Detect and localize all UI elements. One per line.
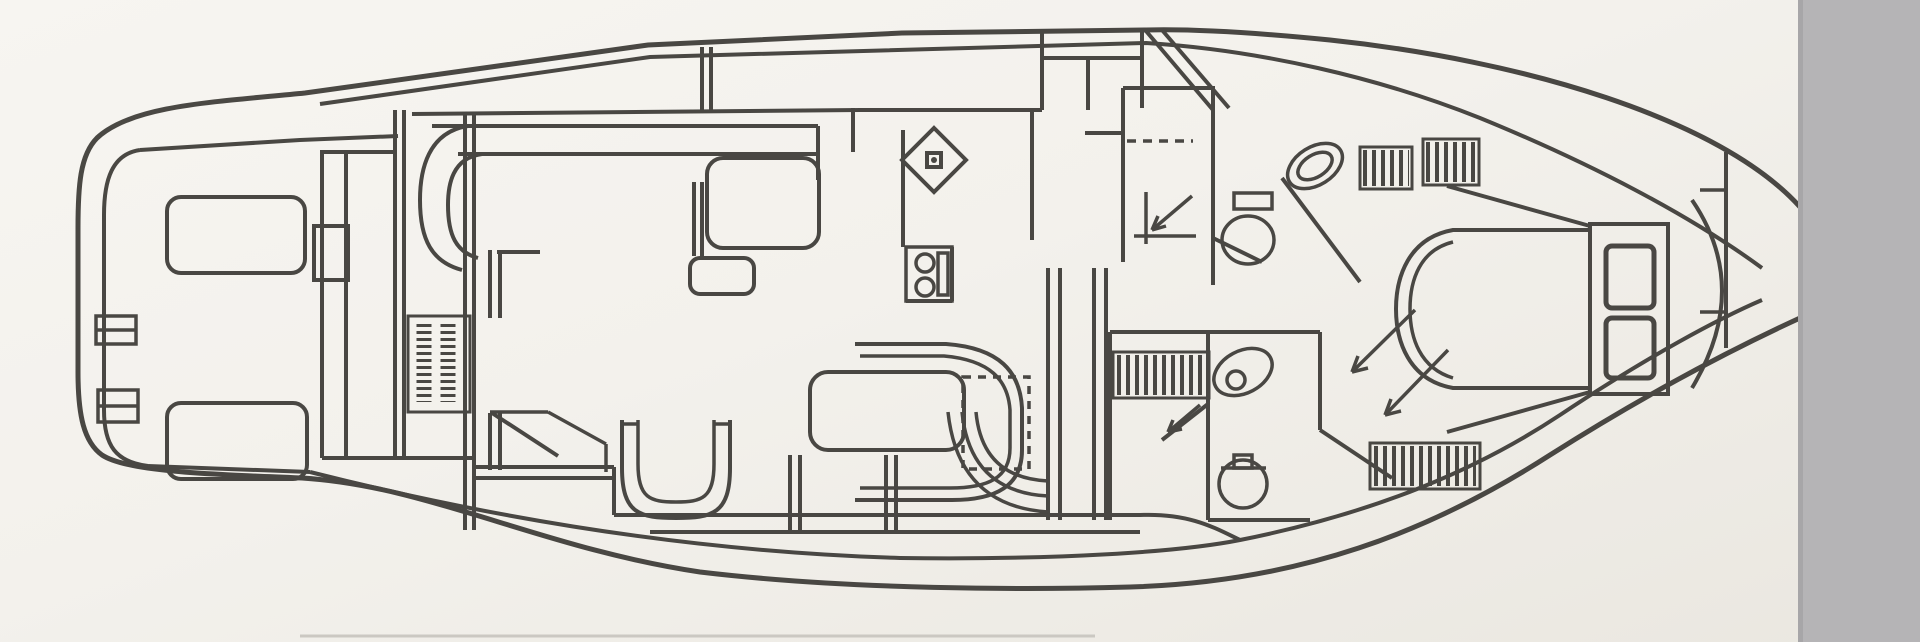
house-top-wall — [412, 110, 1042, 114]
house-front-diagonal-b — [1162, 30, 1229, 108]
ink-linework — [78, 30, 1800, 589]
aft-deck — [96, 150, 398, 479]
toilet-icon-lower — [1219, 455, 1267, 508]
hull-outer-line — [78, 30, 1800, 589]
forward-stateroom — [1352, 186, 1668, 432]
panel-box — [314, 226, 348, 280]
washbasin-icon-lower — [1206, 339, 1280, 405]
head-angled-wall-b — [1282, 178, 1360, 282]
companionway — [948, 268, 1106, 520]
house-bottom-a — [614, 515, 1240, 540]
salon-partition — [694, 182, 702, 256]
island-berth — [1396, 230, 1590, 388]
flybridge-ladder — [314, 150, 398, 458]
yacht-floor-plan-drawing — [0, 0, 1920, 642]
helm-seat — [622, 420, 730, 518]
locker-hatch-c — [1113, 352, 1209, 398]
shower-drain-arrow-icon — [1134, 192, 1196, 244]
scanner-gray-band — [1800, 0, 1920, 642]
stateroom-wall-diag-bottom — [1447, 392, 1590, 432]
salon-table — [707, 158, 819, 248]
two-burner-stove — [906, 247, 952, 301]
hull-outline — [78, 30, 1800, 589]
aft-deck-top-line — [140, 136, 398, 150]
headboard-step-upper — [1606, 246, 1654, 308]
sink-drain-dot — [931, 157, 937, 163]
lower-head — [1110, 330, 1392, 520]
locker-hatch-a — [1360, 147, 1412, 189]
scanned-floor-plan-page — [0, 0, 1920, 642]
berth-foot-inner-line — [1410, 242, 1453, 378]
scanner-gray-band-edge — [1798, 0, 1803, 642]
door-angled-wall — [1162, 404, 1208, 440]
doorway-arrows — [1352, 310, 1448, 415]
house-front-diagonal-a — [1146, 31, 1213, 110]
stateroom-wall-diag-top — [1447, 186, 1590, 226]
transom-inner-line — [104, 150, 148, 466]
locker-hatch-b — [1423, 139, 1479, 185]
deck-hatch-upper — [167, 197, 305, 273]
door-swing-arrow-icon — [1168, 405, 1200, 432]
dinette-table — [810, 372, 964, 450]
locker-hatch-d — [1370, 443, 1480, 489]
deckhouse-walls — [395, 30, 1240, 540]
galley — [902, 110, 1032, 301]
side-deck-bottom-line — [310, 300, 1762, 558]
illegible-vertical-text-block — [408, 316, 470, 412]
upper-head — [1085, 86, 1360, 285]
ottoman — [690, 258, 754, 294]
